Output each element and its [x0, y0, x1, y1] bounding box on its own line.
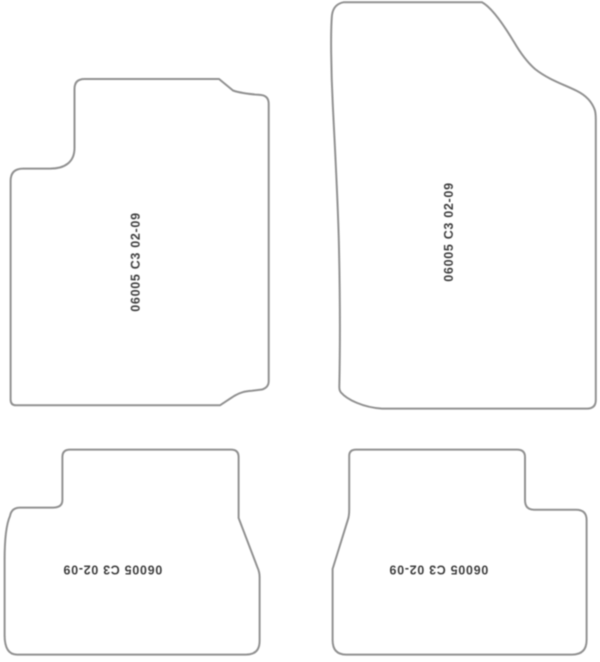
svg-text:06005 C3 02-09: 06005 C3 02-09	[63, 563, 162, 577]
svg-text:06005 C3 02-09: 06005 C3 02-09	[129, 212, 143, 311]
svg-text:06005 C3 02-09: 06005 C3 02-09	[442, 182, 456, 281]
svg-text:06005 C3 02-09: 06005 C3 02-09	[389, 563, 488, 577]
